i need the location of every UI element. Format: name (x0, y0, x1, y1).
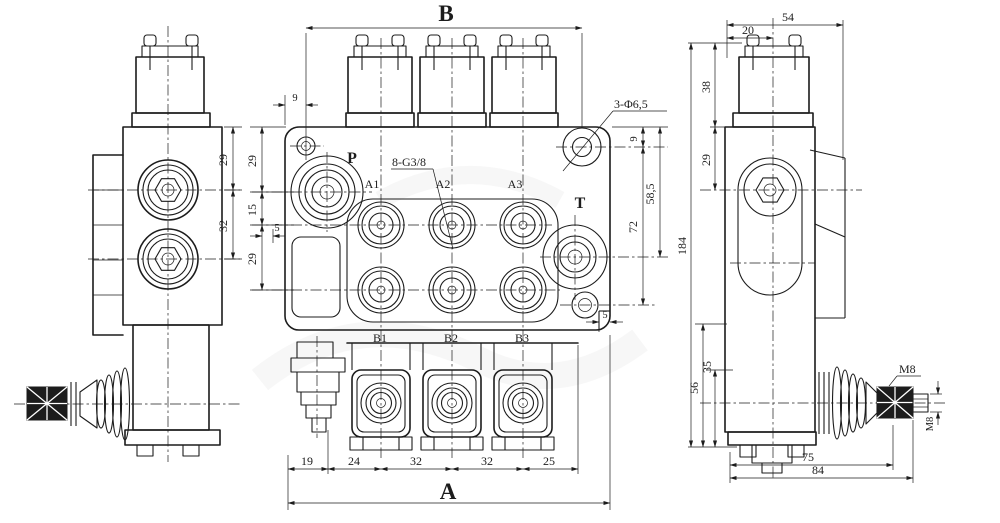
valve-drawing-svg: 29 32 (0, 0, 1000, 523)
port-label-b2: B2 (444, 331, 458, 345)
dim-label-32a: 32 (410, 454, 422, 468)
dim-label-24: 24 (348, 454, 360, 468)
dim-label-20: 20 (742, 23, 754, 37)
dim-54-20: 54 20 (727, 10, 843, 160)
side-view-dimensions: 29 32 (216, 127, 242, 259)
rear-view: M8 M8 54 20 184 (675, 10, 948, 483)
rear-view-lever (819, 367, 928, 439)
dim-label-72: 72 (626, 221, 640, 233)
dim-label-29-rear: 29 (699, 154, 713, 166)
rear-view-body (725, 127, 845, 432)
front-view-mounting-holes (297, 128, 601, 318)
port-label-a3: A3 (508, 177, 523, 191)
callout-m8-side-label: M8 (925, 417, 936, 432)
technical-drawing-canvas: 29 32 (0, 0, 1000, 523)
port-label-b1: B1 (373, 331, 387, 345)
dim-label-184: 184 (675, 237, 689, 255)
callout-mounting-holes: 3-Φ6,5 (563, 97, 667, 171)
dim-label-9-top: 9 (292, 93, 297, 104)
dim-label-75: 75 (802, 450, 814, 464)
callout-thread-label: 8-G3/8 (392, 155, 426, 169)
dim-label-56: 56 (687, 382, 701, 394)
dim-label-left-29b: 29 (245, 253, 259, 265)
dim-label-35: 35 (700, 361, 714, 373)
dim-label-left-29a: 29 (245, 155, 259, 167)
dim-left-stack: 184 56 38 29 35 (675, 43, 742, 447)
dim-label-38: 38 (699, 81, 713, 93)
callout-holes-label: 3-Φ6,5 (614, 97, 648, 111)
dim-9-top: 9 (273, 93, 318, 125)
dim-label-left-15: 15 (245, 204, 259, 216)
dim-chain-left: 29 15 29 5 (245, 127, 294, 290)
dim-label-a: A (440, 479, 457, 504)
dim-label-585: 58,5 (643, 184, 657, 205)
port-label-p: P (347, 150, 357, 167)
port-label-a1: A1 (365, 177, 380, 191)
front-view: P T A1 A2 A3 B1 B2 B3 8-G3/8 3-Φ6,5 B (245, 1, 668, 510)
port-label-b3: B3 (515, 331, 529, 345)
dim-label-b: B (438, 1, 453, 26)
dim-label-5-left: 5 (274, 223, 279, 234)
callout-m8-top-label: M8 (899, 362, 916, 376)
dim-label-side-29: 29 (216, 154, 230, 166)
dim-label-25: 25 (543, 454, 555, 468)
dim-label-32b: 32 (481, 454, 493, 468)
side-view: 29 32 (14, 26, 242, 462)
dim-75-84: 75 84 (730, 420, 913, 483)
dim-label-19: 19 (301, 454, 313, 468)
dim-label-9-right: 9 (629, 136, 640, 141)
dim-label-84: 84 (812, 463, 824, 477)
dim-label-54: 54 (782, 10, 794, 24)
port-label-t: T (575, 195, 586, 212)
side-view-top-cap (132, 35, 210, 127)
dim-label-side-32: 32 (216, 220, 230, 232)
dim-label-5-right: 5 (602, 310, 607, 321)
callout-m8-top: M8 (889, 362, 921, 386)
